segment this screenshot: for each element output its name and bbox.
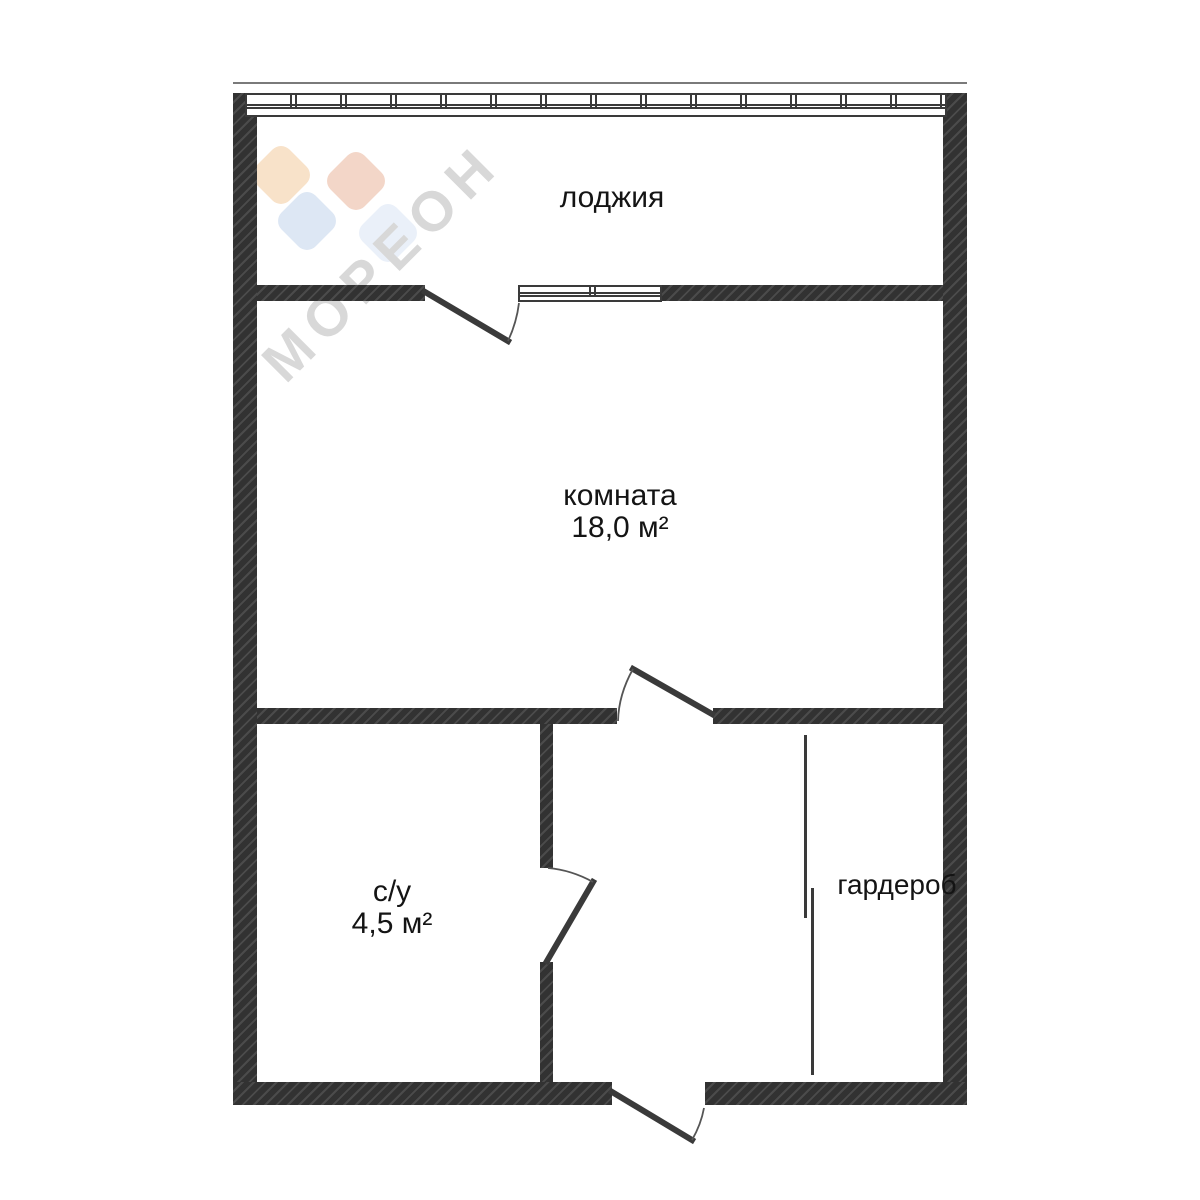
loggia-door-arc — [508, 303, 519, 341]
wall-middle-left-segment — [257, 708, 617, 724]
room-name: с/у — [373, 875, 411, 908]
entrance-door-arc — [692, 1108, 704, 1140]
bathroom-door-leaf — [547, 882, 593, 961]
bathroom-door-arc — [548, 868, 593, 882]
room-label-bathroom: с/у 4,5 м² — [282, 877, 502, 939]
room-area: 18,0 м² — [510, 513, 730, 543]
window-top-loggia — [245, 93, 947, 117]
wall-bathroom-lower-segment — [540, 962, 553, 1082]
room-area: 4,5 м² — [282, 909, 502, 939]
wall-left — [233, 93, 257, 1105]
balcony-glazing-edge-line — [233, 82, 967, 84]
wardrobe-sliding-door-line-2 — [811, 888, 814, 1075]
room-label-room: комната 18,0 м² — [510, 481, 730, 543]
wall-bathroom-upper-segment — [540, 724, 553, 868]
window-mullion-tick — [589, 287, 591, 296]
room-label-wardrobe: гардероб — [787, 871, 1007, 899]
window-middle-room — [518, 285, 662, 302]
loggia-door-leaf — [425, 292, 508, 341]
wall-bottom-right-segment — [705, 1082, 967, 1105]
room-label-loggia: лоджия — [502, 183, 722, 213]
room-door-arc — [618, 669, 633, 721]
wall-bottom-left-segment — [233, 1082, 612, 1105]
doors-layer — [0, 0, 1200, 1200]
window-frame-line — [247, 107, 945, 109]
entrance-door-leaf — [612, 1092, 692, 1140]
window-mullion-tick — [594, 287, 596, 296]
wall-loggia-right-segment — [662, 285, 943, 301]
floor-plan: МОРЕОН лоджия комната — [0, 0, 1200, 1200]
room-name: лоджия — [560, 181, 664, 214]
window-frame-line — [247, 104, 945, 106]
wall-right — [943, 93, 967, 1105]
wall-middle-right-segment — [713, 708, 943, 724]
logo-diamond-salmon — [322, 147, 390, 215]
room-name: комната — [563, 479, 676, 512]
wall-loggia-left-segment — [257, 285, 425, 301]
room-name: гардероб — [837, 869, 956, 900]
room-door-leaf — [633, 669, 712, 714]
